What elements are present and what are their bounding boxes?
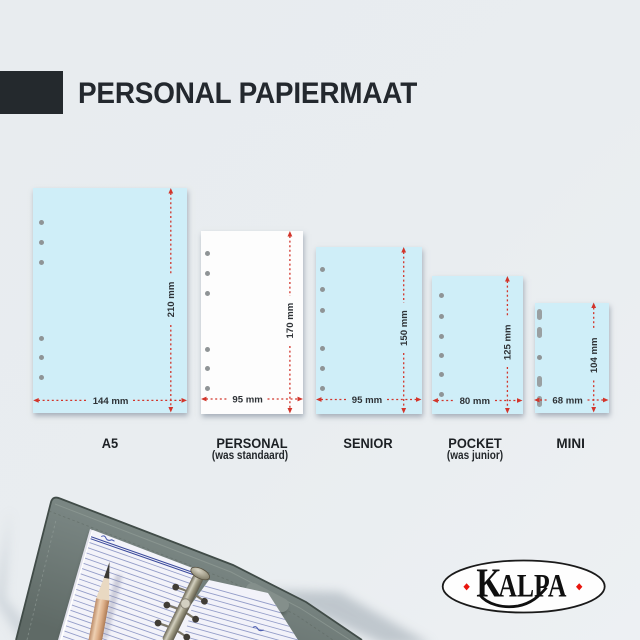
svg-text:125 mm: 125 mm <box>503 324 514 360</box>
svg-text:104 mm: 104 mm <box>589 337 600 373</box>
svg-text:144 mm: 144 mm <box>93 396 129 407</box>
svg-text:80 mm: 80 mm <box>460 396 490 407</box>
svg-text:150 mm: 150 mm <box>399 310 410 346</box>
svg-text:68 mm: 68 mm <box>552 396 582 407</box>
svg-text:95 mm: 95 mm <box>232 395 262 406</box>
svg-text:170 mm: 170 mm <box>285 303 296 339</box>
svg-text:95 mm: 95 mm <box>352 395 382 406</box>
svg-text:210 mm: 210 mm <box>166 282 177 318</box>
